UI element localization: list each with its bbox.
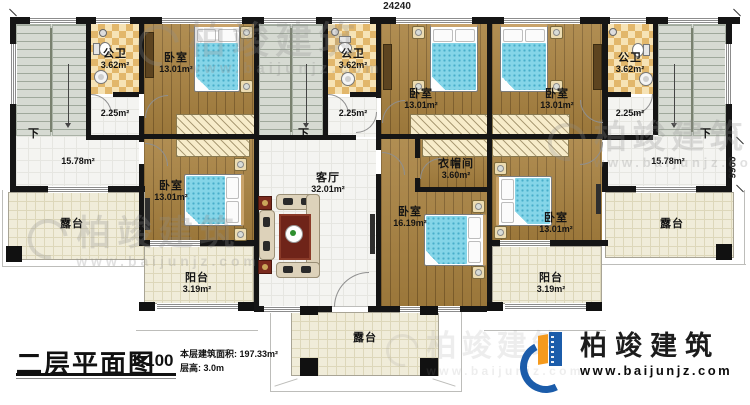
wall <box>487 17 492 306</box>
window <box>668 17 718 24</box>
window <box>264 306 300 313</box>
room-label-bed4: 卧室13.01m² <box>532 88 582 110</box>
nightstand <box>234 158 247 171</box>
sofa-bottom <box>276 262 320 278</box>
column <box>139 302 155 311</box>
nightstand <box>494 162 507 175</box>
stair-down-label: 下 <box>700 125 711 141</box>
wall <box>653 24 658 135</box>
dimension-tick <box>736 185 744 193</box>
column <box>586 302 602 311</box>
stairwell-right-floor <box>658 24 726 136</box>
wall <box>376 174 381 308</box>
wall <box>144 134 254 139</box>
company-logo: 柏竣建筑 www.baijunjz.com <box>518 331 732 385</box>
wardrobe-cloakroom <box>422 139 489 157</box>
floor-area-text: 本层建筑面积: 197.33m² <box>180 348 278 362</box>
nightstand <box>472 266 485 279</box>
dimension-tick <box>736 137 744 145</box>
company-name: 柏竣建筑 <box>580 331 732 362</box>
company-logo-icon <box>518 331 572 385</box>
eave-line-left <box>2 190 3 267</box>
wall <box>139 164 144 242</box>
wall <box>415 187 487 192</box>
plan-scale: 1:100 <box>130 351 173 371</box>
window <box>725 44 732 104</box>
column <box>300 306 318 315</box>
window <box>162 17 242 24</box>
room-label-balcony-left: 阳台3.19m² <box>170 272 224 294</box>
nightstand <box>472 200 485 213</box>
tv <box>370 214 375 254</box>
shower-head <box>609 28 617 36</box>
room-label-bed5: 卧室13.01m² <box>530 212 582 234</box>
shower-head <box>331 28 339 36</box>
column <box>300 358 318 376</box>
wall <box>350 92 377 97</box>
title-underline <box>16 373 176 376</box>
balcony-railing-right <box>505 303 586 310</box>
plant <box>290 230 296 236</box>
company-url: www.baijunjz.com <box>580 363 732 378</box>
wardrobe-bedroom3 <box>410 114 489 136</box>
end-table <box>258 260 272 274</box>
sofa-left <box>259 210 275 260</box>
eave-line-right <box>744 190 745 265</box>
column <box>238 302 254 311</box>
tv <box>145 198 150 230</box>
room-label-hall-small-left: 2.25m² <box>92 108 138 118</box>
wardrobe-cabinet <box>383 44 392 90</box>
window <box>504 17 580 24</box>
balcony-door-left <box>150 240 200 247</box>
wardrobe-bedroom5 <box>492 139 569 157</box>
eave-line-left <box>2 266 150 267</box>
window <box>332 17 370 24</box>
plan-info: 本层建筑面积: 197.33m² 层高: 3.0m <box>180 348 278 375</box>
room-label-terrace-left: 露台 <box>46 218 98 230</box>
stair-down-label: 下 <box>28 125 39 141</box>
stair-down-label: 下 <box>298 125 309 141</box>
wall <box>254 306 264 312</box>
nightstand <box>412 26 425 39</box>
bed <box>500 24 548 92</box>
room-label-terrace-right: 露台 <box>646 218 698 230</box>
dimension-right: 9900 <box>728 156 739 178</box>
nightstand <box>240 26 253 39</box>
shower-head <box>99 29 107 37</box>
tv <box>596 184 601 214</box>
wall <box>86 24 91 135</box>
wardrobe-cabinet <box>593 44 602 90</box>
wardrobe-bedroom-tl <box>176 114 256 136</box>
eave-line-balcony-left <box>136 330 258 331</box>
nightstand <box>234 228 247 241</box>
window <box>264 17 316 24</box>
title-underline-thin <box>16 378 176 379</box>
floor-plan-canvas: 公卫3.62m² 卧室13.01m² 2.25m² 15.78m² 下 露台 卧… <box>0 0 750 405</box>
stairwell-mid-floor <box>259 24 323 136</box>
room-label-bed3: 卧室13.01m² <box>396 88 446 110</box>
room-label-bath-mid: 公卫3.62m² <box>330 48 376 70</box>
room-label-bath-left: 公卫3.62m² <box>92 48 138 70</box>
window <box>96 17 130 24</box>
room-label-hall-small-right: 2.25m² <box>607 108 653 118</box>
room-label-cloakroom: 衣帽间3.60m² <box>426 158 486 180</box>
nightstand <box>550 26 563 39</box>
window <box>610 17 646 24</box>
window <box>396 17 472 24</box>
dimension-top: 24240 <box>352 1 442 12</box>
wall <box>607 135 653 140</box>
column <box>487 302 503 311</box>
window <box>30 17 76 24</box>
room-label-bed16: 卧室16.19m² <box>384 206 436 228</box>
room-label-bed-tl: 卧室13.01m² <box>147 52 205 74</box>
room-label-bed-bl: 卧室13.01m² <box>146 180 196 202</box>
sink <box>341 72 355 86</box>
column <box>716 244 732 260</box>
wall <box>113 92 139 97</box>
dimension-tick <box>9 9 17 17</box>
stairwell-left-floor <box>16 24 86 136</box>
wall <box>376 17 381 98</box>
balcony-railing-left <box>157 303 238 310</box>
eave-line-right <box>600 264 746 265</box>
dimension-tick <box>733 9 741 17</box>
balcony-door-right <box>500 240 550 247</box>
wall <box>415 139 420 158</box>
room-label-hall-right: 15.78m² <box>638 156 698 166</box>
wall <box>86 135 139 140</box>
sink <box>94 70 108 84</box>
floor-height-text: 层高: 3.0m <box>180 362 278 376</box>
room-label-bath-right: 公卫3.62m² <box>607 52 653 74</box>
wall <box>139 17 144 94</box>
room-label-living: 客厅32.01m² <box>300 172 356 194</box>
nightstand <box>240 80 253 93</box>
wardrobe-bedroom-bl <box>176 139 250 157</box>
end-table <box>258 196 272 210</box>
wardrobe-bedroom4 <box>492 114 570 136</box>
terrace-door-left <box>48 186 108 193</box>
room-label-terrace-bottom: 露台 <box>338 332 392 344</box>
wall <box>323 24 328 135</box>
room-label-hall-small-mid: 2.25m² <box>330 108 376 118</box>
nightstand <box>494 226 507 239</box>
window <box>10 44 17 104</box>
room-label-hall-left: 15.78m² <box>48 156 108 166</box>
bed <box>430 24 478 92</box>
wall <box>607 92 631 97</box>
column <box>420 358 438 376</box>
terrace-door-right <box>636 186 696 193</box>
column <box>6 246 22 262</box>
column <box>420 306 438 315</box>
room-label-balcony-right: 阳台3.19m² <box>524 272 578 294</box>
